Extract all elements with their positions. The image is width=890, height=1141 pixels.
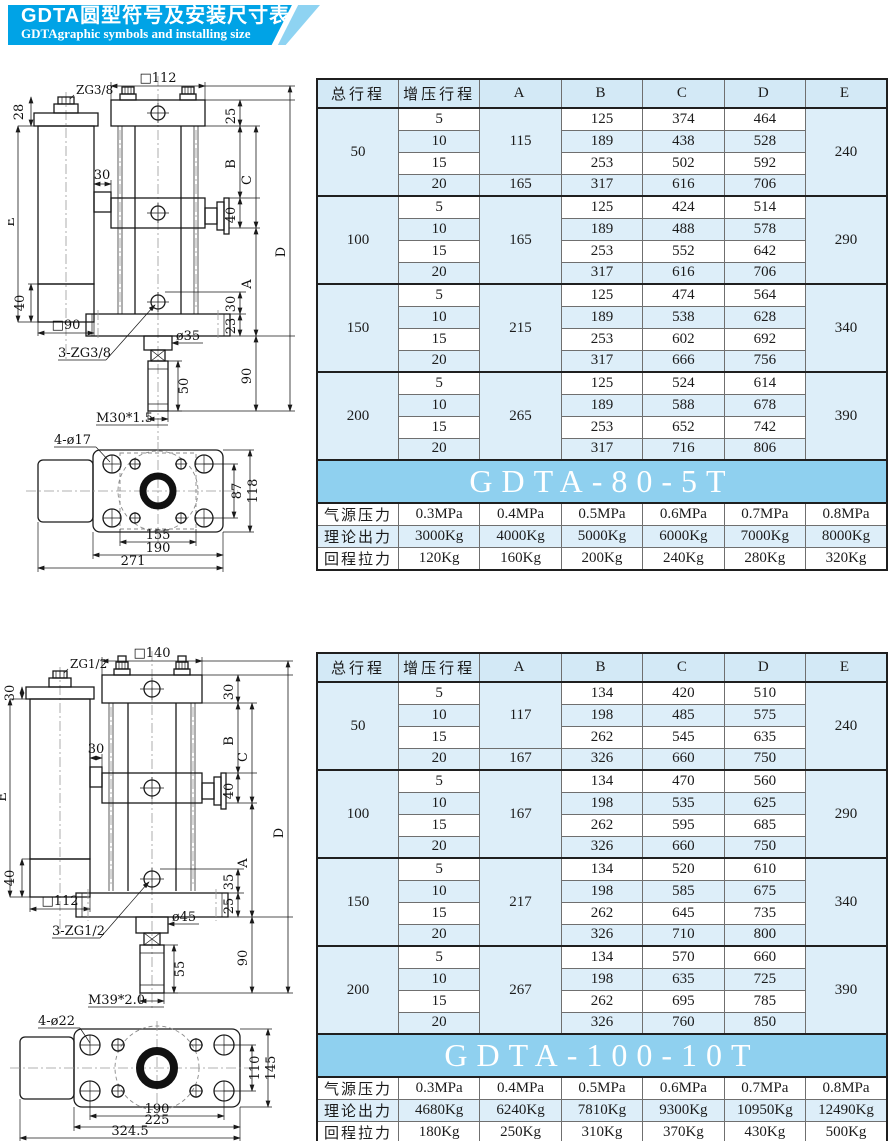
dim-a-cell: 117 — [480, 682, 561, 748]
spec-value-cell: 8000Kg — [806, 526, 887, 548]
table-row: 2005267134570660390 — [317, 946, 887, 968]
dim-e-cell: 290 — [806, 770, 887, 858]
boost-stroke-cell: 20 — [398, 174, 479, 196]
column-header: 增压行程 — [398, 79, 479, 108]
dim-d-cell: 692 — [724, 328, 805, 350]
table-row: 20317666756 — [317, 350, 887, 372]
dim-label: 30 — [94, 168, 111, 183]
spec-row: 理论出力3000Kg4000Kg5000Kg6000Kg7000Kg8000Kg — [317, 526, 887, 548]
boost-stroke-cell: 5 — [398, 372, 479, 394]
dim-a-cell: 167 — [480, 748, 561, 770]
dim-d-cell: 725 — [724, 968, 805, 990]
dim-label: 23 — [224, 318, 239, 335]
dimension-table: 总行程增压行程ABCDE5051151253744642401018943852… — [316, 78, 888, 571]
table-row: 20165317616706 — [317, 174, 887, 196]
dim-b-cell: 189 — [561, 130, 642, 152]
dim-c-cell: 595 — [643, 814, 724, 836]
dim-b-cell: 125 — [561, 284, 642, 306]
boost-stroke-cell: 10 — [398, 394, 479, 416]
dim-d-cell: 800 — [724, 924, 805, 946]
table-row: 15262545635 — [317, 726, 887, 748]
dim-label: 145 — [264, 1056, 279, 1081]
dim-b-cell: 134 — [561, 682, 642, 704]
dim-b-cell: 253 — [561, 152, 642, 174]
dim-label: 4-ø22 — [38, 1014, 75, 1029]
table-row: 15262695785 — [317, 990, 887, 1012]
header-row: 总行程增压行程ABCDE — [317, 79, 887, 108]
dim-label: 25 — [224, 108, 239, 125]
spec-value-cell: 0.3MPa — [398, 503, 479, 526]
boost-stroke-cell: 5 — [398, 770, 479, 792]
dim-d-cell: 735 — [724, 902, 805, 924]
dim-d-cell: 635 — [724, 726, 805, 748]
dim-label: □140 — [133, 646, 170, 661]
dim-c-cell: 760 — [643, 1012, 724, 1034]
total-stroke-cell: 100 — [317, 196, 398, 284]
column-header: D — [724, 79, 805, 108]
spec-value-cell: 3000Kg — [398, 526, 479, 548]
boost-stroke-cell: 20 — [398, 748, 479, 770]
boost-stroke-cell: 20 — [398, 836, 479, 858]
dim-b-cell: 317 — [561, 174, 642, 196]
spec-value-cell: 240Kg — [643, 548, 724, 571]
dim-e-cell: 390 — [806, 372, 887, 460]
dim-label: 3-ZG1/2 — [52, 924, 105, 939]
dim-label: □112 — [41, 894, 78, 909]
dim-c-cell: 535 — [643, 792, 724, 814]
total-stroke-cell: 50 — [317, 682, 398, 770]
column-header: C — [643, 79, 724, 108]
dim-label: A — [240, 279, 255, 290]
dim-b-cell: 262 — [561, 726, 642, 748]
boost-stroke-cell: 5 — [398, 108, 479, 130]
dim-c-cell: 616 — [643, 174, 724, 196]
table-row: 2005265125524614390 — [317, 372, 887, 394]
table-row: 20326660750 — [317, 836, 887, 858]
dim-b-cell: 317 — [561, 438, 642, 460]
table-row: 15253552642 — [317, 240, 887, 262]
table-row: 20317716806 — [317, 438, 887, 460]
column-header: A — [480, 653, 561, 682]
dim-e-cell: 240 — [806, 108, 887, 196]
table-row: 20167326660750 — [317, 748, 887, 770]
dim-b-cell: 198 — [561, 792, 642, 814]
dim-b-cell: 317 — [561, 262, 642, 284]
table-row: 15253602692 — [317, 328, 887, 350]
boost-stroke-cell: 15 — [398, 152, 479, 174]
dim-label: A — [236, 858, 251, 869]
table-row: 10198635725 — [317, 968, 887, 990]
dim-label: 50 — [177, 378, 192, 395]
dim-d-cell: 610 — [724, 858, 805, 880]
table-row: 10189438528 — [317, 130, 887, 152]
spec-row: 回程拉力180Kg250Kg310Kg370Kg430Kg500Kg — [317, 1122, 887, 1141]
dim-label: 90 — [240, 368, 255, 385]
spec-row: 气源压力0.3MPa0.4MPa0.5MPa0.6MPa0.7MPa0.8MPa — [317, 503, 887, 526]
dim-label: 40 — [224, 207, 239, 224]
spec-value-cell: 0.6MPa — [643, 1077, 724, 1100]
dim-label: 90 — [236, 950, 251, 967]
dim-b-cell: 134 — [561, 770, 642, 792]
dim-d-cell: 785 — [724, 990, 805, 1012]
model-banner-row: GDTA-80-5T — [317, 460, 887, 503]
dim-b-cell: 134 — [561, 858, 642, 880]
dim-a-cell: 115 — [480, 108, 561, 174]
spec-value-cell: 280Kg — [724, 548, 805, 571]
total-stroke-cell: 50 — [317, 108, 398, 196]
dim-label: 4-ø17 — [54, 433, 91, 448]
dim-b-cell: 189 — [561, 394, 642, 416]
boost-stroke-cell: 5 — [398, 284, 479, 306]
dim-b-cell: 125 — [561, 108, 642, 130]
boost-stroke-cell: 10 — [398, 704, 479, 726]
spec-value-cell: 0.3MPa — [398, 1077, 479, 1100]
column-header: D — [724, 653, 805, 682]
dim-label: B — [224, 159, 239, 169]
total-stroke-cell: 200 — [317, 372, 398, 460]
dim-label: M30*1.5 — [96, 411, 153, 426]
boost-stroke-cell: 15 — [398, 902, 479, 924]
spec-value-cell: 310Kg — [561, 1122, 642, 1141]
dim-d-cell: 685 — [724, 814, 805, 836]
column-header: 总行程 — [317, 653, 398, 682]
table-row: 15262645735 — [317, 902, 887, 924]
spec-value-cell: 10950Kg — [724, 1100, 805, 1122]
dim-a-cell: 265 — [480, 372, 561, 460]
column-header: C — [643, 653, 724, 682]
total-stroke-cell: 150 — [317, 858, 398, 946]
boost-stroke-cell: 10 — [398, 880, 479, 902]
boost-stroke-cell: 5 — [398, 196, 479, 218]
technical-drawing-gdta-100: ZG1/2 30 E 40 □112 □140 — [0, 645, 310, 1141]
dim-d-cell: 628 — [724, 306, 805, 328]
dim-d-cell: 575 — [724, 704, 805, 726]
dim-label: 30 — [224, 296, 239, 313]
dim-c-cell: 616 — [643, 262, 724, 284]
dim-c-cell: 420 — [643, 682, 724, 704]
boost-stroke-cell: 15 — [398, 990, 479, 1012]
table-row: 10198535625 — [317, 792, 887, 814]
dim-c-cell: 438 — [643, 130, 724, 152]
spec-value-cell: 9300Kg — [643, 1100, 724, 1122]
dim-c-cell: 660 — [643, 836, 724, 858]
dim-a-cell: 165 — [480, 196, 561, 284]
boost-stroke-cell: 15 — [398, 328, 479, 350]
spec-value-cell: 370Kg — [643, 1122, 724, 1141]
dim-d-cell: 514 — [724, 196, 805, 218]
dim-d-cell: 564 — [724, 284, 805, 306]
dim-c-cell: 588 — [643, 394, 724, 416]
table-row: 20326760850 — [317, 1012, 887, 1034]
dim-c-cell: 716 — [643, 438, 724, 460]
page-title-en: GDTAgraphic symbols and installing size — [21, 27, 290, 41]
dim-d-cell: 510 — [724, 682, 805, 704]
table-row: 1005167134470560290 — [317, 770, 887, 792]
dim-label: E — [8, 217, 18, 227]
spec-value-cell: 0.8MPa — [806, 503, 887, 526]
boost-stroke-cell: 20 — [398, 262, 479, 284]
dim-d-cell: 678 — [724, 394, 805, 416]
spec-value-cell: 6000Kg — [643, 526, 724, 548]
spec-value-cell: 500Kg — [806, 1122, 887, 1141]
dim-label: D — [272, 828, 287, 838]
table-row: 1505215125474564340 — [317, 284, 887, 306]
column-header: 增压行程 — [398, 653, 479, 682]
dim-e-cell: 340 — [806, 284, 887, 372]
dim-b-cell: 326 — [561, 836, 642, 858]
dim-b-cell: 253 — [561, 328, 642, 350]
total-stroke-cell: 100 — [317, 770, 398, 858]
dim-label: D — [274, 247, 289, 257]
dim-c-cell: 652 — [643, 416, 724, 438]
dim-label: C — [240, 175, 255, 185]
dim-c-cell: 520 — [643, 858, 724, 880]
dim-label: 40 — [222, 783, 237, 800]
table-row: 15253652742 — [317, 416, 887, 438]
dim-label: 110 — [248, 1056, 263, 1081]
dim-label: C — [236, 752, 251, 762]
dim-d-cell: 660 — [724, 946, 805, 968]
front-view: ZG3/8 28 E 40 □90 □112 — [8, 71, 295, 440]
spec-label-cell: 气源压力 — [317, 503, 398, 526]
dim-a-cell: 215 — [480, 284, 561, 372]
spec-value-cell: 200Kg — [561, 548, 642, 571]
dim-c-cell: 524 — [643, 372, 724, 394]
technical-drawing-gdta-80: ZG3/8 28 E 40 □90 □112 — [8, 70, 308, 585]
spec-value-cell: 0.5MPa — [561, 503, 642, 526]
dim-b-cell: 198 — [561, 704, 642, 726]
table-row: 10198485575 — [317, 704, 887, 726]
boost-stroke-cell: 20 — [398, 350, 479, 372]
dim-e-cell: 390 — [806, 946, 887, 1034]
dim-c-cell: 538 — [643, 306, 724, 328]
model-banner-row: GDTA-100-10T — [317, 1034, 887, 1077]
dim-b-cell: 326 — [561, 1012, 642, 1034]
dim-c-cell: 660 — [643, 748, 724, 770]
dim-d-cell: 806 — [724, 438, 805, 460]
dim-c-cell: 485 — [643, 704, 724, 726]
dim-d-cell: 675 — [724, 880, 805, 902]
column-header: E — [806, 79, 887, 108]
boost-stroke-cell: 5 — [398, 858, 479, 880]
dim-b-cell: 253 — [561, 240, 642, 262]
dim-b-cell: 326 — [561, 748, 642, 770]
table-row: 20326710800 — [317, 924, 887, 946]
spec-value-cell: 0.7MPa — [724, 503, 805, 526]
dim-label: 30 — [88, 742, 105, 757]
dim-d-cell: 578 — [724, 218, 805, 240]
table-row: 1505217134520610340 — [317, 858, 887, 880]
dim-b-cell: 189 — [561, 306, 642, 328]
table-row: 10189588678 — [317, 394, 887, 416]
dim-b-cell: 253 — [561, 416, 642, 438]
page-header: GDTA圆型符号及安装尺寸表 GDTAgraphic symbols and i… — [8, 5, 320, 45]
dim-label: ø35 — [176, 329, 200, 344]
spec-value-cell: 0.4MPa — [480, 1077, 561, 1100]
dim-label: E — [0, 792, 10, 802]
dim-c-cell: 585 — [643, 880, 724, 902]
table-row: 20317616706 — [317, 262, 887, 284]
dim-label: 271 — [121, 554, 146, 569]
table-row: 505117134420510240 — [317, 682, 887, 704]
dimension-table-gdta-80: 总行程增压行程ABCDE5051151253744642401018943852… — [316, 78, 888, 571]
spec-value-cell: 12490Kg — [806, 1100, 887, 1122]
boost-stroke-cell: 20 — [398, 924, 479, 946]
dim-b-cell: 262 — [561, 814, 642, 836]
spec-value-cell: 7000Kg — [724, 526, 805, 548]
header-row: 总行程增压行程ABCDE — [317, 653, 887, 682]
dim-c-cell: 424 — [643, 196, 724, 218]
dim-b-cell: 326 — [561, 924, 642, 946]
dim-label: 35 — [222, 874, 237, 891]
dimension-table: 总行程增压行程ABCDE5051171344205102401019848557… — [316, 652, 888, 1141]
dim-a-cell: 217 — [480, 858, 561, 946]
dim-c-cell: 635 — [643, 968, 724, 990]
boost-stroke-cell: 15 — [398, 726, 479, 748]
dim-label: 25 — [222, 898, 237, 915]
spec-value-cell: 7810Kg — [561, 1100, 642, 1122]
dim-c-cell: 710 — [643, 924, 724, 946]
dim-c-cell: 488 — [643, 218, 724, 240]
dim-c-cell: 695 — [643, 990, 724, 1012]
dim-c-cell: 474 — [643, 284, 724, 306]
dim-label: 55 — [173, 961, 188, 978]
dim-d-cell: 614 — [724, 372, 805, 394]
dim-label: 87 — [230, 483, 245, 500]
dim-c-cell: 645 — [643, 902, 724, 924]
front-view: ZG1/2 30 E 40 □112 □140 — [0, 646, 293, 1011]
spec-value-cell: 320Kg — [806, 548, 887, 571]
spec-value-cell: 0.5MPa — [561, 1077, 642, 1100]
spec-value-cell: 430Kg — [724, 1122, 805, 1141]
dim-d-cell: 464 — [724, 108, 805, 130]
table-row: 15253502592 — [317, 152, 887, 174]
dim-b-cell: 125 — [561, 372, 642, 394]
table-row: 15262595685 — [317, 814, 887, 836]
header-text: GDTA圆型符号及安装尺寸表 GDTAgraphic symbols and i… — [21, 6, 290, 41]
table-row: 505115125374464240 — [317, 108, 887, 130]
column-header: A — [480, 79, 561, 108]
column-header: E — [806, 653, 887, 682]
table-row: 10189538628 — [317, 306, 887, 328]
dim-d-cell: 742 — [724, 416, 805, 438]
dim-c-cell: 666 — [643, 350, 724, 372]
dim-d-cell: 706 — [724, 262, 805, 284]
column-header: B — [561, 79, 642, 108]
dim-label: □112 — [139, 71, 176, 86]
boost-stroke-cell: 15 — [398, 416, 479, 438]
dim-a-cell: 165 — [480, 174, 561, 196]
boost-stroke-cell: 15 — [398, 240, 479, 262]
spec-label-cell: 理论出力 — [317, 526, 398, 548]
dim-b-cell: 262 — [561, 902, 642, 924]
spec-value-cell: 4000Kg — [480, 526, 561, 548]
spec-value-cell: 4680Kg — [398, 1100, 479, 1122]
dim-c-cell: 602 — [643, 328, 724, 350]
dim-d-cell: 592 — [724, 152, 805, 174]
spec-value-cell: 180Kg — [398, 1122, 479, 1141]
dim-c-cell: 552 — [643, 240, 724, 262]
table-row: 10189488578 — [317, 218, 887, 240]
dimension-table-gdta-100: 总行程增压行程ABCDE5051171344205102401019848557… — [316, 652, 888, 1141]
dim-label: B — [222, 736, 237, 746]
table-row: 1005165125424514290 — [317, 196, 887, 218]
spec-value-cell: 250Kg — [480, 1122, 561, 1141]
spec-value-cell: 6240Kg — [480, 1100, 561, 1122]
dim-c-cell: 470 — [643, 770, 724, 792]
boost-stroke-cell: 10 — [398, 130, 479, 152]
boost-stroke-cell: 5 — [398, 682, 479, 704]
dim-c-cell: 374 — [643, 108, 724, 130]
spec-label-cell: 回程拉力 — [317, 1122, 398, 1141]
dim-b-cell: 317 — [561, 350, 642, 372]
dim-d-cell: 750 — [724, 836, 805, 858]
boost-stroke-cell: 20 — [398, 1012, 479, 1034]
dim-d-cell: 642 — [724, 240, 805, 262]
dim-label: 190 — [146, 541, 171, 556]
dim-d-cell: 560 — [724, 770, 805, 792]
table-row: 10198585675 — [317, 880, 887, 902]
dim-e-cell: 340 — [806, 858, 887, 946]
dim-d-cell: 750 — [724, 748, 805, 770]
dim-d-cell: 706 — [724, 174, 805, 196]
spec-row: 气源压力0.3MPa0.4MPa0.5MPa0.6MPa0.7MPa0.8MPa — [317, 1077, 887, 1100]
total-stroke-cell: 150 — [317, 284, 398, 372]
dim-label: 30 — [222, 684, 237, 701]
spec-row: 回程拉力120Kg160Kg200Kg240Kg280Kg320Kg — [317, 548, 887, 571]
dim-c-cell: 545 — [643, 726, 724, 748]
dim-a-cell: 167 — [480, 770, 561, 858]
dim-d-cell: 625 — [724, 792, 805, 814]
dim-c-cell: 570 — [643, 946, 724, 968]
spec-label-cell: 气源压力 — [317, 1077, 398, 1100]
model-name: GDTA-100-10T — [317, 1034, 887, 1077]
boost-stroke-cell: 10 — [398, 792, 479, 814]
dim-b-cell: 189 — [561, 218, 642, 240]
boost-stroke-cell: 20 — [398, 438, 479, 460]
dim-label: 118 — [246, 479, 261, 504]
spec-label-cell: 理论出力 — [317, 1100, 398, 1122]
dim-label: ZG3/8 — [76, 83, 113, 97]
dim-b-cell: 134 — [561, 946, 642, 968]
dim-a-cell: 267 — [480, 946, 561, 1034]
spec-value-cell: 120Kg — [398, 548, 479, 571]
boost-stroke-cell: 15 — [398, 814, 479, 836]
dim-b-cell: 198 — [561, 968, 642, 990]
spec-value-cell: 0.4MPa — [480, 503, 561, 526]
dim-c-cell: 502 — [643, 152, 724, 174]
spec-value-cell: 0.6MPa — [643, 503, 724, 526]
spec-value-cell: 160Kg — [480, 548, 561, 571]
boost-stroke-cell: 10 — [398, 218, 479, 240]
column-header: B — [561, 653, 642, 682]
dim-d-cell: 850 — [724, 1012, 805, 1034]
dim-label: □90 — [52, 318, 81, 333]
dim-b-cell: 198 — [561, 880, 642, 902]
dim-b-cell: 125 — [561, 196, 642, 218]
boost-stroke-cell: 10 — [398, 306, 479, 328]
dim-e-cell: 240 — [806, 682, 887, 770]
dim-label: ø45 — [172, 910, 196, 925]
spec-label-cell: 回程拉力 — [317, 548, 398, 571]
spec-value-cell: 0.8MPa — [806, 1077, 887, 1100]
dim-label: 40 — [13, 295, 28, 312]
catalog-page: GDTA圆型符号及安装尺寸表 GDTAgraphic symbols and i… — [0, 0, 890, 1141]
dim-label: M39*2.0 — [88, 993, 145, 1008]
column-header: 总行程 — [317, 79, 398, 108]
dim-d-cell: 528 — [724, 130, 805, 152]
spec-row: 理论出力4680Kg6240Kg7810Kg9300Kg10950Kg12490… — [317, 1100, 887, 1122]
